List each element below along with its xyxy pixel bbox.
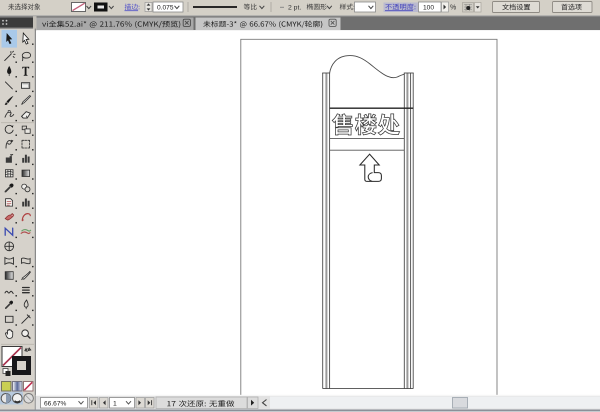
svg-text:0.075: 0.075 bbox=[157, 4, 174, 11]
svg-text:2 pt.: 2 pt. bbox=[288, 4, 301, 11]
svg-text:1: 1 bbox=[113, 400, 117, 407]
svg-text:66.67%: 66.67% bbox=[44, 400, 67, 407]
svg-text:100: 100 bbox=[423, 4, 434, 11]
svg-text:%: % bbox=[450, 5, 456, 12]
